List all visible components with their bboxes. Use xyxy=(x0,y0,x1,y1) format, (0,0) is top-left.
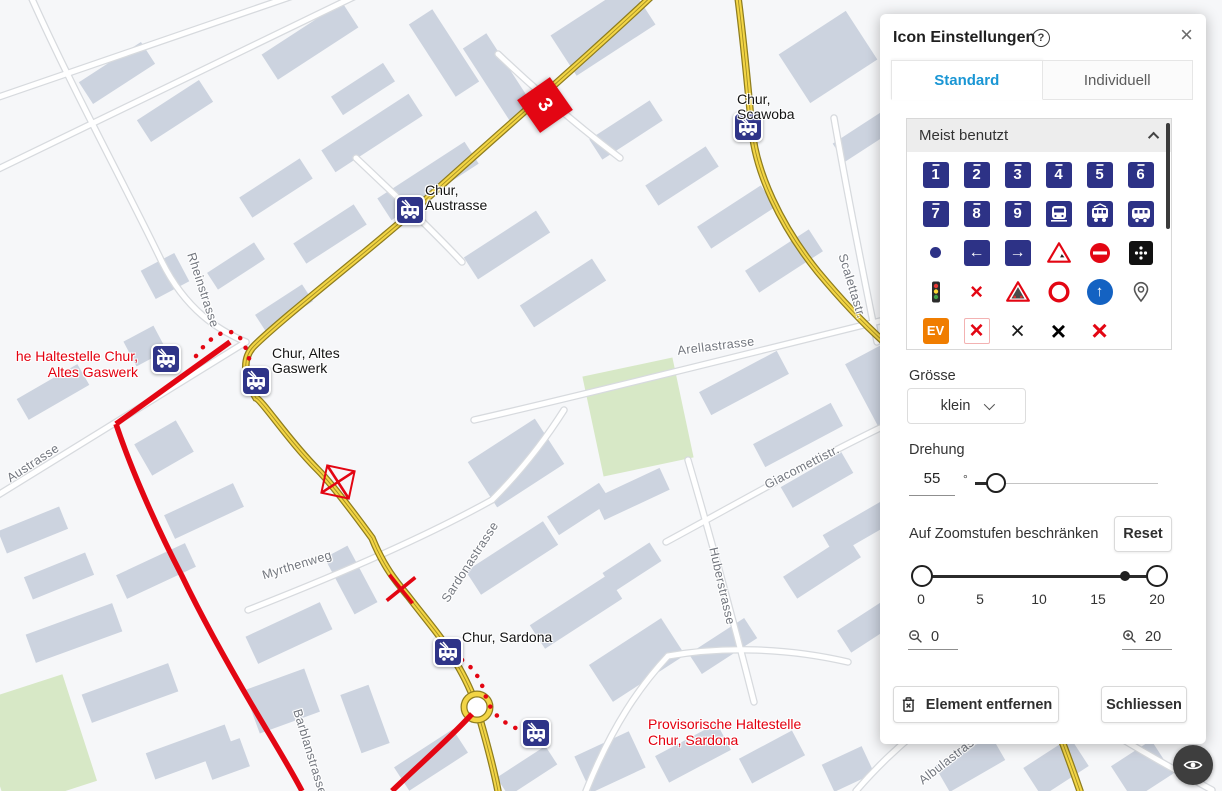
icon-no-entry[interactable] xyxy=(1087,240,1113,266)
map-label-chur-altes-gaswerk: Chur, AltesGaswerk xyxy=(272,346,340,376)
note-provisional-sardona: Provisorische HaltestelleChur, Sardona xyxy=(648,716,801,748)
visibility-fab[interactable] xyxy=(1173,745,1213,785)
zoom-tick-labels: 0 5 10 15 20 xyxy=(910,591,1170,607)
current-zoom-dot xyxy=(1120,571,1130,581)
panel-title: Icon Einstellungen xyxy=(893,29,1035,47)
trolleybus-icon xyxy=(524,721,548,745)
closure-x-marker xyxy=(387,575,416,604)
icon-ev-replacement[interactable]: EV xyxy=(923,318,949,344)
icon-line-3[interactable]: 3 xyxy=(1005,162,1031,188)
close-panel-label: Schliessen xyxy=(1106,697,1182,713)
icon-line-9[interactable]: 9 xyxy=(1005,201,1031,227)
size-select[interactable]: klein xyxy=(907,388,1026,424)
eye-icon xyxy=(1181,753,1205,777)
zoom-in-icon xyxy=(1122,629,1137,644)
icon-cancel-red-selected[interactable]: × xyxy=(964,318,990,344)
tick-10: 10 xyxy=(1031,591,1047,607)
icon-cancel-black-thin[interactable]: × xyxy=(1005,318,1031,344)
icon-line-4[interactable]: 4 xyxy=(1046,162,1072,188)
icon-bus[interactable] xyxy=(1128,201,1154,227)
map-label-chur-austrasse: Chur,Austrasse xyxy=(425,183,487,213)
icon-rockfall-warning[interactable] xyxy=(1005,279,1031,305)
zoom-max-input[interactable]: 20 xyxy=(1122,624,1172,650)
icon-mandatory-direction[interactable]: ↑ xyxy=(1087,279,1113,305)
rotation-label: Drehung xyxy=(909,442,965,458)
icon-grid-scrollbar[interactable] xyxy=(1166,123,1170,229)
icon-stop-point[interactable] xyxy=(923,240,949,266)
icon-traffic-light[interactable] xyxy=(923,279,949,305)
bus-stop-icon-sardona[interactable] xyxy=(433,637,463,667)
icon-line-1[interactable]: 1 xyxy=(923,162,949,188)
icon-settings-panel: Icon Einstellungen ? × Standard Individu… xyxy=(880,14,1206,744)
degree-unit: ° xyxy=(963,472,968,486)
icon-tram[interactable] xyxy=(1087,201,1113,227)
bus-stop-icon-altes-gaswerk[interactable] xyxy=(241,366,271,396)
icon-construction-warning[interactable] xyxy=(1046,240,1072,266)
bus-stop-icon-provisional-sardona[interactable] xyxy=(521,718,551,748)
icon-line-6[interactable]: 6 xyxy=(1128,162,1154,188)
icon-cancel-red-bold[interactable]: × xyxy=(1087,318,1113,344)
icon-line-8[interactable]: 8 xyxy=(964,201,990,227)
zoom-max-value: 20 xyxy=(1145,629,1161,645)
rotation-slider-handle[interactable] xyxy=(986,473,1006,493)
most-used-header[interactable]: Meist benutzt xyxy=(907,119,1171,152)
icon-dots-sign[interactable] xyxy=(1128,240,1154,266)
tick-15: 15 xyxy=(1090,591,1106,607)
icon-arrow-left[interactable]: ← xyxy=(964,240,990,266)
trolleybus-icon xyxy=(244,369,268,393)
bus-stop-icon-austrasse[interactable] xyxy=(395,195,425,225)
trolleybus-icon xyxy=(154,347,178,371)
icon-grid: 1 2 3 4 5 6 7 8 9 ← → × ↑ EV × × xyxy=(907,152,1171,351)
icon-line-5[interactable]: 5 xyxy=(1087,162,1113,188)
close-icon[interactable]: × xyxy=(1180,22,1193,48)
bus-stop-icon-provisional-gaswerk[interactable] xyxy=(151,344,181,374)
icon-line-7[interactable]: 7 xyxy=(923,201,949,227)
rotation-slider-track xyxy=(996,483,1158,485)
panel-tabs: Standard Individuell xyxy=(891,60,1193,100)
zoom-min-value: 0 xyxy=(931,629,939,645)
chevron-up-icon xyxy=(1148,131,1159,142)
most-used-label: Meist benutzt xyxy=(919,127,1008,144)
icon-prohibition-ring[interactable] xyxy=(1046,279,1072,305)
icon-library: Meist benutzt 1 2 3 4 5 6 7 8 9 ← → × xyxy=(906,118,1172,350)
chevron-down-icon xyxy=(984,399,995,410)
tab-individuell[interactable]: Individuell xyxy=(1043,60,1194,100)
size-select-value: klein xyxy=(941,398,971,414)
map-label-chur-sardona: Chur, Sardona xyxy=(462,630,552,645)
icon-line-2[interactable]: 2 xyxy=(964,162,990,188)
remove-element-button[interactable]: Element entfernen xyxy=(893,686,1059,723)
close-panel-button[interactable]: Schliessen xyxy=(1101,686,1187,723)
icon-location-pin[interactable] xyxy=(1128,279,1154,305)
icon-arrow-right[interactable]: → xyxy=(1005,240,1031,266)
map-label-chur-scawoba: Chur,Scawoba xyxy=(737,92,795,122)
tick-20: 20 xyxy=(1149,591,1165,607)
note-provisional-altes-gaswerk: he Haltestelle Chur,Altes Gaswerk xyxy=(0,348,138,380)
icon-cancel-black-bold[interactable]: × xyxy=(1046,318,1072,344)
size-label: Grösse xyxy=(909,368,956,384)
reset-button[interactable]: Reset xyxy=(1114,516,1172,552)
zoom-min-handle[interactable] xyxy=(911,565,933,587)
trolleybus-icon xyxy=(398,198,422,222)
tick-5: 5 xyxy=(976,591,984,607)
zoom-limit-label: Auf Zoomstufen beschränken xyxy=(909,526,1098,542)
rotation-slider[interactable] xyxy=(975,468,1158,498)
selected-line-marker-label: 3 xyxy=(532,94,557,116)
zoom-out-icon xyxy=(908,629,923,644)
trolleybus-icon xyxy=(436,640,460,664)
zoom-min-input[interactable]: 0 xyxy=(908,624,958,650)
tab-standard[interactable]: Standard xyxy=(891,60,1043,100)
tick-0: 0 xyxy=(917,591,925,607)
icon-train[interactable] xyxy=(1046,201,1072,227)
remove-element-label: Element entfernen xyxy=(926,697,1053,713)
zoom-max-handle[interactable] xyxy=(1146,565,1168,587)
help-icon[interactable]: ? xyxy=(1032,29,1050,47)
icon-closed-crossing[interactable]: × xyxy=(964,279,990,305)
trash-x-icon xyxy=(900,696,917,713)
rotation-input[interactable]: 55 xyxy=(909,470,955,496)
